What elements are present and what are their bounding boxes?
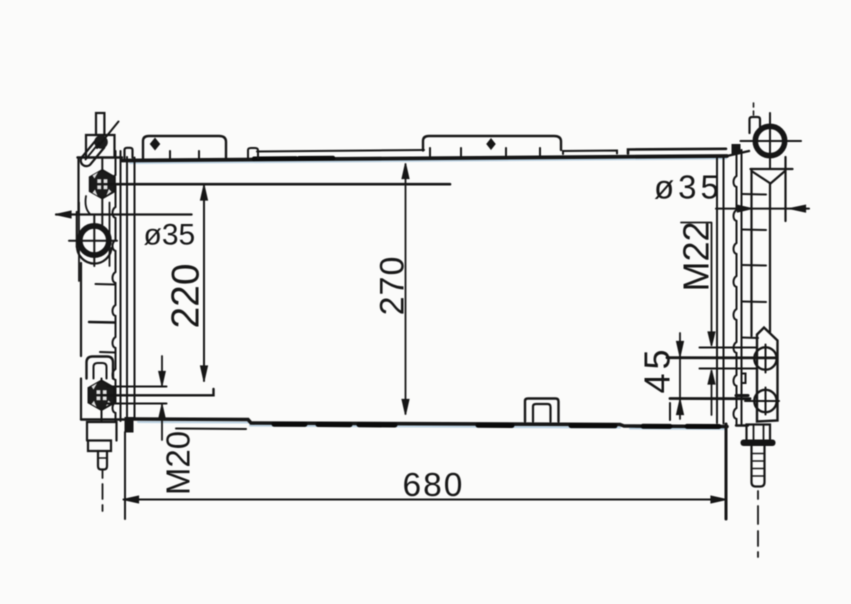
svg-text:ø35: ø35 <box>144 218 196 251</box>
svg-text:680: 680 <box>403 467 465 504</box>
svg-text:45: 45 <box>637 345 678 393</box>
svg-text:ø35: ø35 <box>654 169 723 206</box>
svg-text:M22: M22 <box>676 221 717 291</box>
svg-text:270: 270 <box>374 256 412 316</box>
svg-text:220: 220 <box>165 263 208 328</box>
svg-text:M20: M20 <box>160 431 197 495</box>
